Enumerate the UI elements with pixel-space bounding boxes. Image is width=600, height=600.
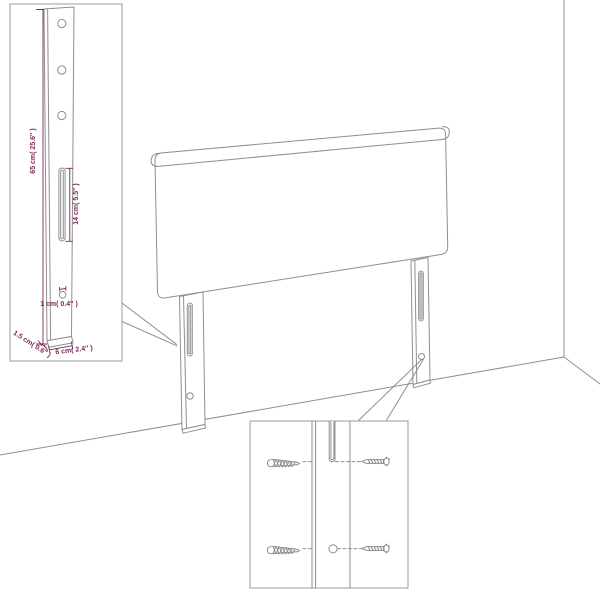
assembly-diagram: 65 cm( 25.6″ ) 14 cm( 5.5″ ) 1 cm( 0.4″ … xyxy=(0,0,600,600)
screw-detail-inset xyxy=(250,421,408,588)
hole-closeup xyxy=(329,545,337,553)
mounting-slot xyxy=(419,271,424,321)
slot-length-dimension-label: 14 cm( 5.5″ ) xyxy=(73,183,80,224)
leg-slot xyxy=(59,168,65,241)
leg-hole xyxy=(58,19,66,27)
height-dimension-label: 65 cm( 25.6″ ) xyxy=(30,128,37,173)
callout-lines-left xyxy=(122,303,177,346)
mounting-hole xyxy=(187,393,193,399)
leg-hole xyxy=(58,66,66,74)
hole-diameter-dimension-label: 1 cm( 0.4″ ) xyxy=(40,301,78,308)
leg-hole xyxy=(58,111,66,119)
headboard-panel xyxy=(151,127,449,298)
leg-small-hole xyxy=(59,292,66,299)
floor-line-right xyxy=(564,357,600,384)
right-leg xyxy=(411,258,431,388)
mounting-slot xyxy=(187,303,192,356)
leg-dimensions-inset: 65 cm( 25.6″ ) 14 cm( 5.5″ ) 1 cm( 0.4″ … xyxy=(10,4,122,361)
left-leg xyxy=(180,292,206,433)
diagram-canvas: 65 cm( 25.6″ ) 14 cm( 5.5″ ) 1 cm( 0.4″ … xyxy=(0,0,600,600)
